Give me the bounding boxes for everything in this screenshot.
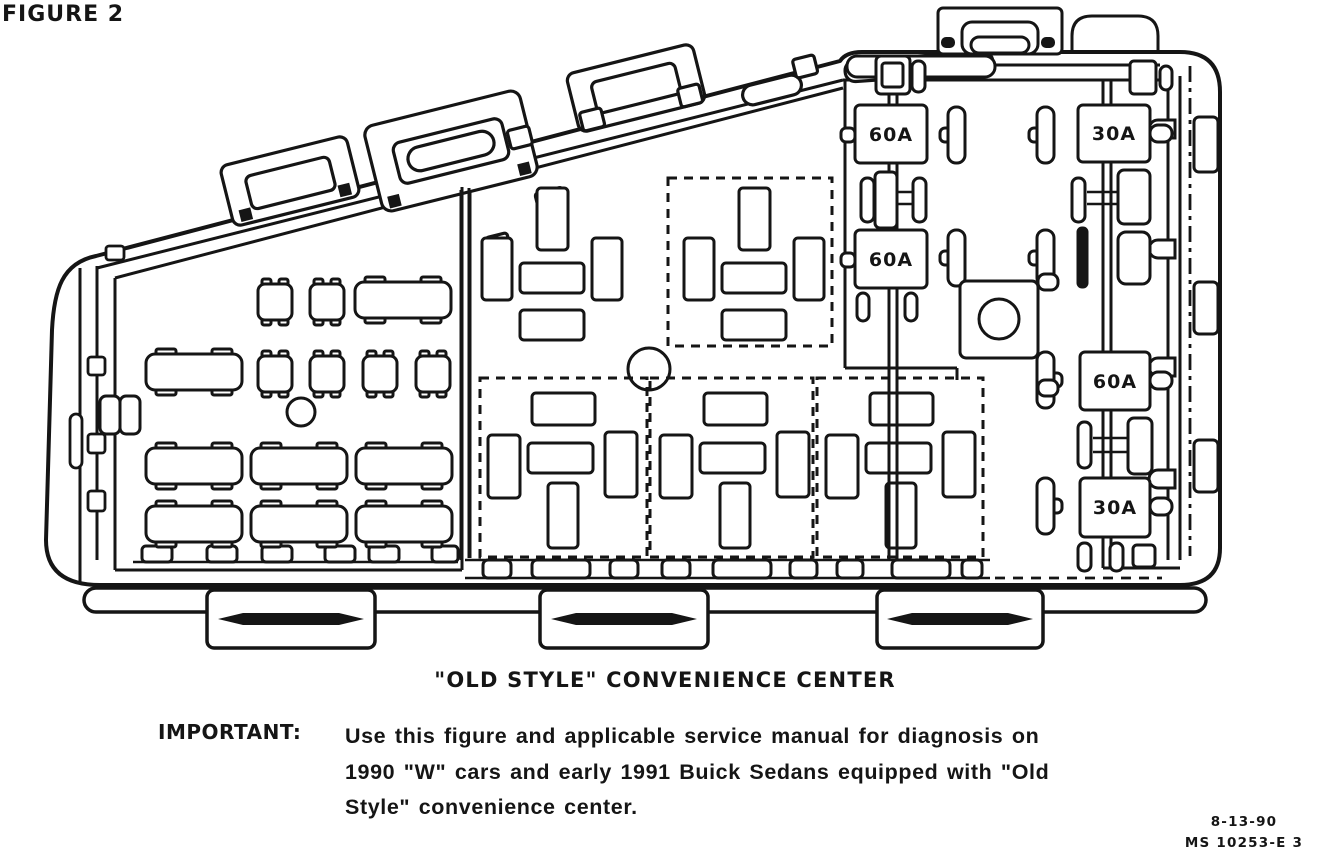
harness-connector-1 <box>219 135 360 227</box>
note-line-1: Use this figure and applicable service m… <box>345 719 1049 755</box>
mounting-slot <box>551 613 697 625</box>
blackened-terminal <box>1078 228 1087 287</box>
maxi-fuse-label-2: 30A <box>1092 123 1136 145</box>
mounting-slot <box>218 613 364 625</box>
h-terminal-right-lower <box>1078 418 1152 474</box>
revision-date: 8-13-90 <box>1154 812 1328 833</box>
maxi-fuse-label-5: 30A <box>1093 497 1137 519</box>
document-codes: 8-13-90 MS 10253-E 3 <box>1154 812 1328 854</box>
mounting-flange <box>84 588 1206 648</box>
deck-tab <box>792 55 818 79</box>
important-note: Use this figure and applicable service m… <box>345 719 1049 826</box>
harness-connector-2 <box>363 89 540 213</box>
top-edge-connector <box>938 8 1062 54</box>
note-line-3: Style" convenience center. <box>345 790 1049 826</box>
important-label: IMPORTANT: <box>158 720 301 744</box>
mounting-slot <box>887 613 1033 625</box>
maxi-fuse-label-3: 60A <box>869 249 913 271</box>
maxi-fuse-label-4: 60A <box>1093 371 1137 393</box>
document-number: MS 10253-E 3 <box>1154 833 1328 854</box>
left-fuse-panel <box>100 187 470 570</box>
deck-tab <box>507 126 533 150</box>
convenience-center-diagram: 60A 30A 60A 60A 30A <box>0 0 1328 660</box>
document-page: FIGURE 2 <box>0 0 1328 860</box>
maxi-fuse-label-1: 60A <box>869 124 913 146</box>
top-edge-bump <box>1072 16 1158 54</box>
deck-tab <box>579 108 605 132</box>
diagram-caption: "OLD STYLE" CONVENIENCE CENTER <box>20 668 1310 692</box>
note-line-2: 1990 "W" cars and early 1991 Buick Sedan… <box>345 755 1049 791</box>
deck-tab <box>677 84 703 108</box>
h-terminal-left <box>861 172 926 228</box>
maxi-fuse-section: 60A 30A 60A 60A 30A <box>841 8 1218 578</box>
